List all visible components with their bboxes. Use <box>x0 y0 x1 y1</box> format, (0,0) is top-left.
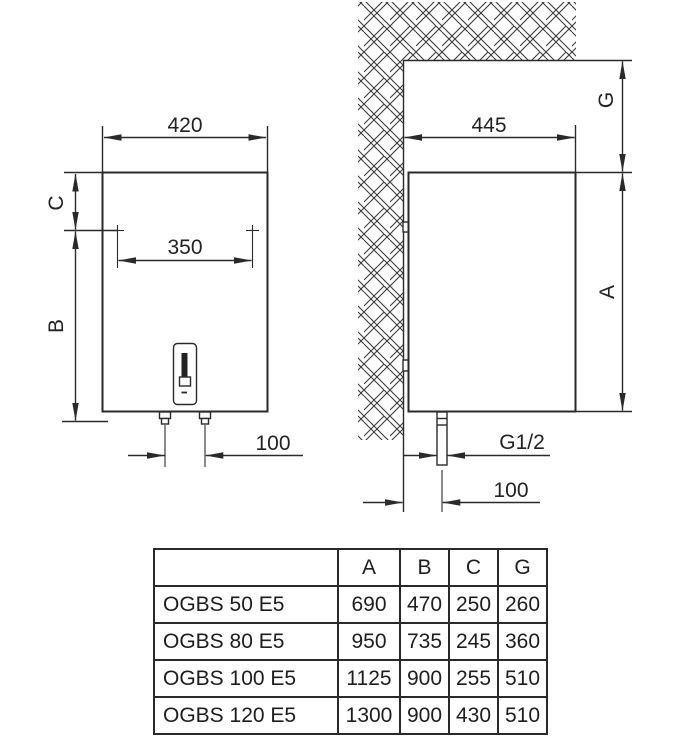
value-c: 245 <box>449 623 498 660</box>
dim-g12-label: G1/2 <box>499 431 545 454</box>
table-row-ogbs-50: OGBS 50 E5 690 470 250 260 <box>154 586 547 623</box>
dim-a-label: A <box>596 285 619 299</box>
table-row-ogbs-120: OGBS 120 E5 1300 900 430 510 <box>154 697 547 734</box>
value-c: 430 <box>449 697 498 734</box>
table-row-ogbs-80: OGBS 80 E5 950 735 245 360 <box>154 623 547 660</box>
value-c: 250 <box>449 586 498 623</box>
dim-g-label: G <box>595 92 618 108</box>
model-cell: OGBS 80 E5 <box>154 623 338 660</box>
control-panel <box>174 344 197 405</box>
dim-c-label: C <box>45 195 68 210</box>
spec-table: A B C G OGBS 50 E5 690 470 250 260 OGBS … <box>153 548 548 735</box>
dim-420-label: 420 <box>167 114 202 137</box>
dim-b-label: B <box>45 319 68 333</box>
dimension-drawing: 420 350 C B 100 445 G A G1/2 100 <box>0 0 700 535</box>
pipe-stub-left <box>160 412 171 467</box>
value-g: 360 <box>498 623 547 660</box>
value-a: 950 <box>338 623 400 660</box>
col-header-c: C <box>449 549 498 586</box>
front-view-drawing <box>62 126 303 467</box>
value-a: 1300 <box>338 697 400 734</box>
model-cell: OGBS 100 E5 <box>154 660 338 697</box>
value-a: 1125 <box>338 660 400 697</box>
dim-350-label: 350 <box>167 236 202 259</box>
table-row-ogbs-100: OGBS 100 E5 1125 900 255 510 <box>154 660 547 697</box>
model-cell: OGBS 120 E5 <box>154 697 338 734</box>
pipe-stub-right <box>200 412 211 467</box>
empty-header-cell <box>154 549 338 586</box>
col-header-a: A <box>338 549 400 586</box>
value-a: 690 <box>338 586 400 623</box>
value-b: 900 <box>400 697 449 734</box>
heater-side-outline <box>409 173 576 412</box>
value-b: 735 <box>400 623 449 660</box>
pipe-stub-side <box>437 412 447 512</box>
side-view-drawing <box>358 2 632 512</box>
model-cell: OGBS 50 E5 <box>154 586 338 623</box>
dim-100-front-label: 100 <box>255 432 290 455</box>
value-g: 260 <box>498 586 547 623</box>
control-slider-track <box>182 353 188 380</box>
value-g: 510 <box>498 660 547 697</box>
table-header-row: A B C G <box>154 549 547 586</box>
dim-445-label: 445 <box>471 114 506 137</box>
value-g: 510 <box>498 697 547 734</box>
control-slider-knob <box>180 377 191 386</box>
technical-drawing-page: 420 350 C B 100 445 G A G1/2 100 A B C <box>0 0 700 749</box>
value-b: 470 <box>400 586 449 623</box>
dim-100-side-label: 100 <box>493 479 528 502</box>
col-header-g: G <box>498 549 547 586</box>
col-header-b: B <box>400 549 449 586</box>
value-c: 255 <box>449 660 498 697</box>
value-b: 900 <box>400 660 449 697</box>
